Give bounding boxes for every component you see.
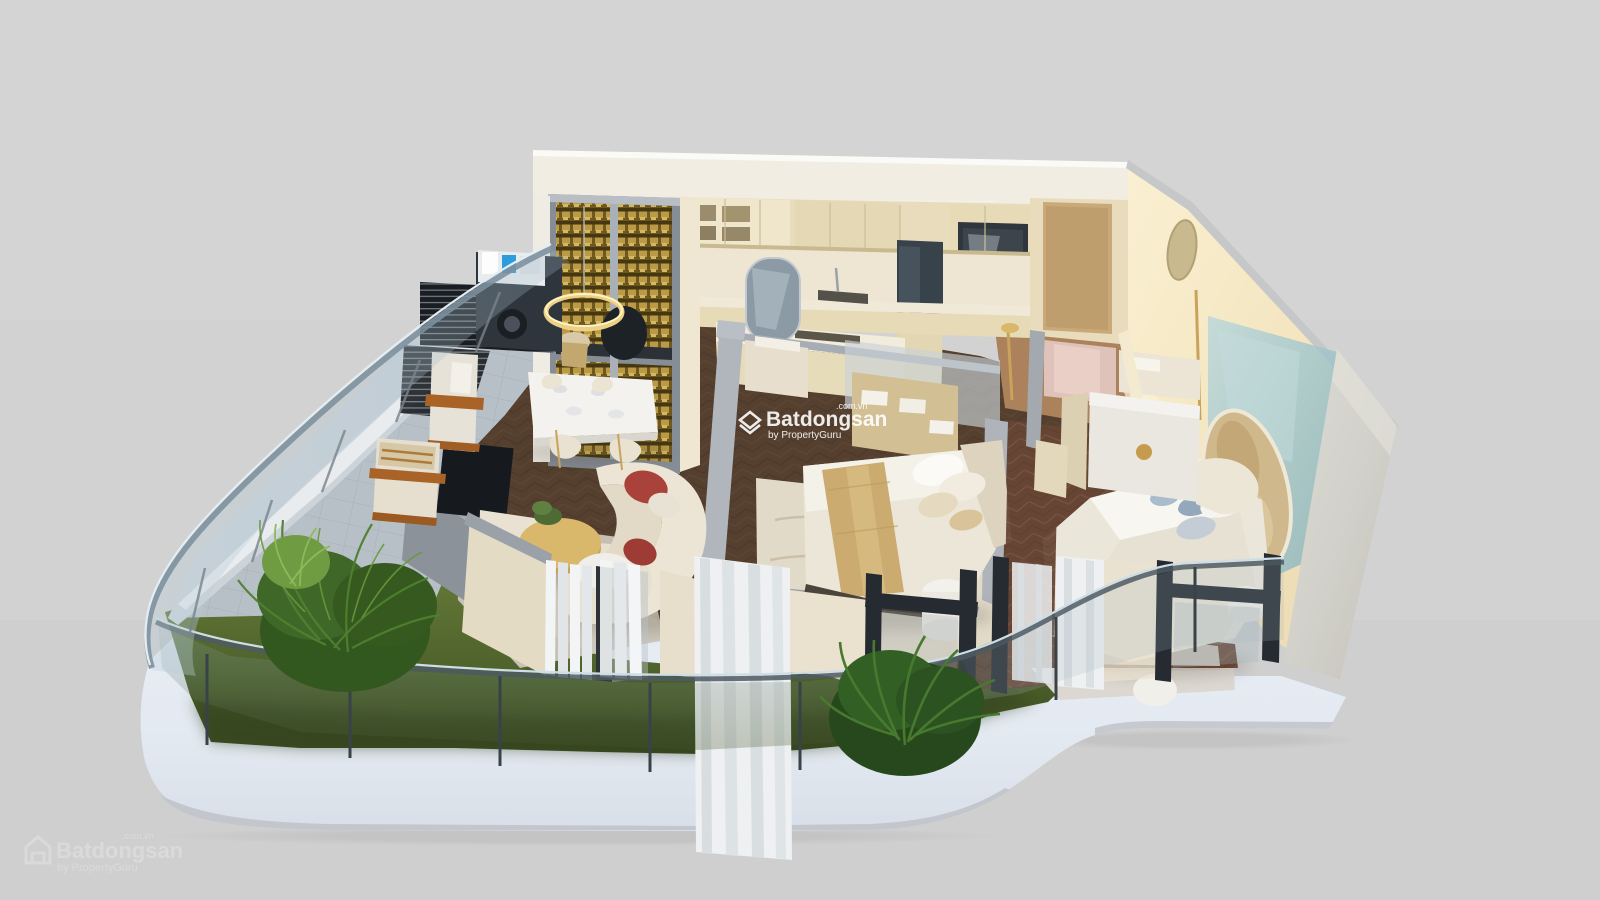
svg-text:Batdongsan: Batdongsan [766,408,887,431]
svg-text:by PropertyGuru: by PropertyGuru [768,430,841,441]
svg-text:by PropertyGuru: by PropertyGuru [57,862,138,874]
svg-text:.com.vn: .com.vn [836,401,868,411]
svg-text:.com.vn: .com.vn [122,831,154,841]
svg-text:Batdongsan: Batdongsan [56,838,183,863]
